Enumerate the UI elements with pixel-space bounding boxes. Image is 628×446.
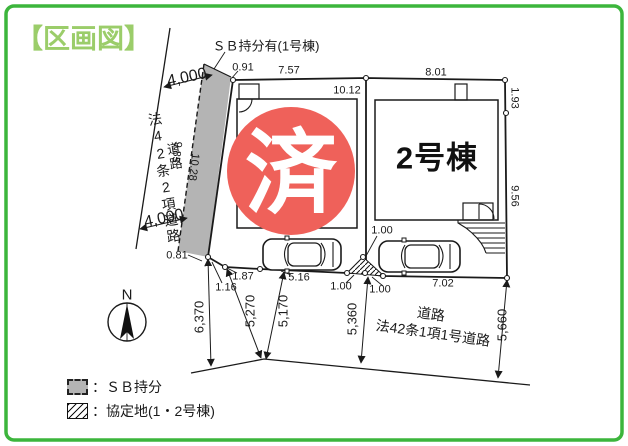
dim-parcel1-top: 7.57 bbox=[278, 66, 299, 77]
stairs bbox=[458, 220, 505, 253]
legend-sb-swatch bbox=[67, 379, 88, 395]
dim-seg-516: 5.16 bbox=[288, 273, 309, 284]
dim-road-5270: 5,270 bbox=[244, 295, 257, 328]
compass-north-label: N bbox=[122, 288, 133, 303]
legend-kyotei-label: ：協定地(1・2号棟) bbox=[92, 404, 215, 418]
dim-road-5170: 5,170 bbox=[277, 295, 290, 328]
south-road bbox=[191, 359, 530, 385]
legend-kyotei-swatch bbox=[67, 403, 88, 419]
car-1 bbox=[263, 236, 341, 273]
dim-seg-116: 1.16 bbox=[215, 283, 236, 294]
legend-sb-label: ：ＳＢ持分 bbox=[92, 380, 162, 394]
south-road-name-label: 道路 bbox=[416, 305, 446, 323]
page-title: 【区画図】 bbox=[16, 26, 151, 53]
dim-road-5360: 5,360 bbox=[346, 303, 359, 336]
dim-seg-100-right: 1.00 bbox=[369, 285, 390, 296]
dim-seg-702: 7.02 bbox=[432, 279, 453, 290]
dim-strip-bottom-offset: 0.81 bbox=[166, 251, 187, 262]
sb-note: ＳＢ持分有(1号棟) bbox=[213, 40, 320, 53]
dim-seg-100-left: 1.00 bbox=[330, 282, 351, 293]
building2-label: 2号棟 bbox=[396, 143, 478, 174]
dim-strip-outer: 9.85 bbox=[169, 141, 183, 164]
dim-strip-top-offset: 0.91 bbox=[232, 63, 253, 74]
dim-right-lower: 9.56 bbox=[509, 185, 520, 206]
dim-parcel-divider: 10.12 bbox=[333, 86, 361, 97]
dim-road-5660: 5,660 bbox=[496, 309, 509, 342]
dim-seg-100-top: 1.00 bbox=[371, 226, 392, 237]
car-2 bbox=[379, 238, 460, 275]
compass bbox=[108, 303, 146, 341]
dim-right-upper: 1.93 bbox=[509, 87, 520, 108]
dim-strip-inner: 10.28 bbox=[186, 153, 200, 182]
plot-plan-page: 【区画図】 ＳＢ持分有(1号棟) 済 2号棟 N 法42条2項道路 道路 道路 … bbox=[0, 0, 628, 446]
sb-strip bbox=[178, 64, 231, 257]
sold-stamp-text: 済 bbox=[245, 128, 337, 220]
dim-road-6370: 6,370 bbox=[193, 301, 206, 334]
dim-parcel2-top: 8.01 bbox=[425, 68, 446, 79]
